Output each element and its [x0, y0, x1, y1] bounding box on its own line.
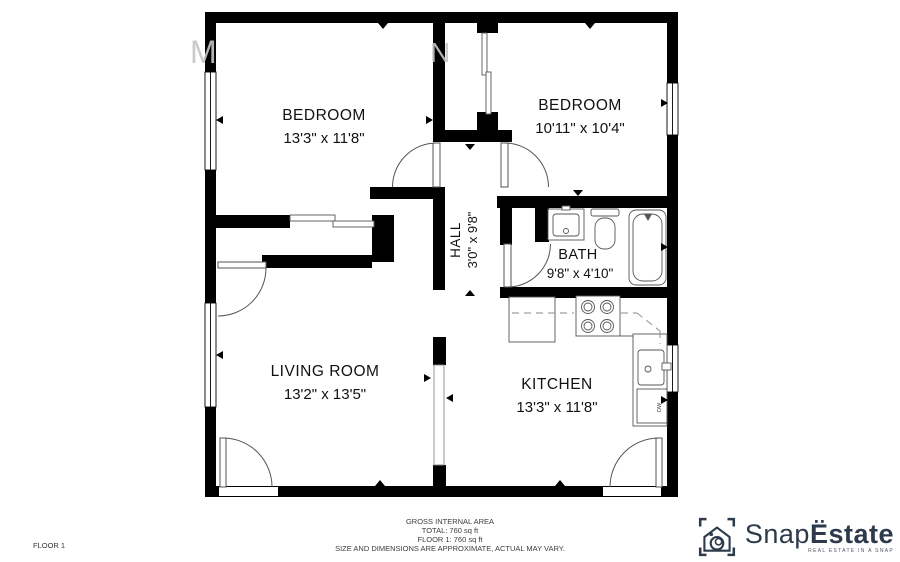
bedroom1-dims: 13'3" x 11'8"	[283, 130, 364, 147]
stove-icon	[576, 296, 620, 336]
logo-wordmark: SnapËstate	[745, 521, 894, 547]
bedroom1-name: BEDROOM	[282, 107, 366, 124]
living-room-name: LIVING ROOM	[271, 363, 380, 380]
window-living-room	[205, 303, 216, 407]
cased-opening	[434, 365, 444, 465]
bath-sink-icon	[548, 206, 584, 240]
logo-text: SnapËstate REAL ESTATE IN A SNAP	[745, 521, 894, 554]
bathtub-icon	[629, 210, 666, 285]
door-kitchen-rear	[610, 438, 662, 487]
living-room-dims: 13'2" x 13'5"	[284, 386, 366, 403]
logo-brand-primary: Snap	[745, 519, 810, 549]
bath-dims: 9'8" x 4'10"	[547, 266, 614, 281]
window-bedroom2	[667, 83, 678, 135]
bedroom2-name: BEDROOM	[538, 97, 622, 114]
toilet-icon	[591, 209, 619, 249]
watermark: M N	[190, 34, 450, 70]
floorplan-page: DW BED	[0, 0, 900, 562]
bedroom2-dims: 10'11" x 10'4"	[535, 120, 625, 137]
floor-plan-drawing: DW BED	[0, 0, 900, 562]
door-bedroom2	[501, 143, 549, 187]
door-bedroom1	[393, 143, 441, 187]
logo-tagline: REAL ESTATE IN A SNAP	[745, 548, 894, 554]
fridge-icon	[509, 297, 555, 342]
watermark-letter-2: N	[430, 37, 450, 68]
hall-name: HALL	[448, 222, 463, 258]
camera-house-icon	[696, 516, 738, 558]
bath-name: BATH	[558, 247, 598, 263]
door-front	[220, 438, 272, 487]
snapestate-logo: SnapËstate REAL ESTATE IN A SNAP	[696, 516, 894, 558]
watermark-letter-1: M	[190, 34, 217, 70]
window-bedroom1	[205, 72, 216, 170]
door-closet	[218, 262, 266, 316]
kitchen-dims: 13'3" x 11'8"	[516, 399, 597, 416]
dishwasher-icon: DW	[637, 389, 667, 423]
door-bath	[504, 244, 551, 287]
hall-dims: 3'0" x 9'8"	[465, 211, 480, 268]
kitchen-name: KITCHEN	[521, 376, 593, 393]
logo-brand-secondary: Ëstate	[810, 519, 894, 549]
dishwasher-label: DW	[657, 402, 663, 412]
